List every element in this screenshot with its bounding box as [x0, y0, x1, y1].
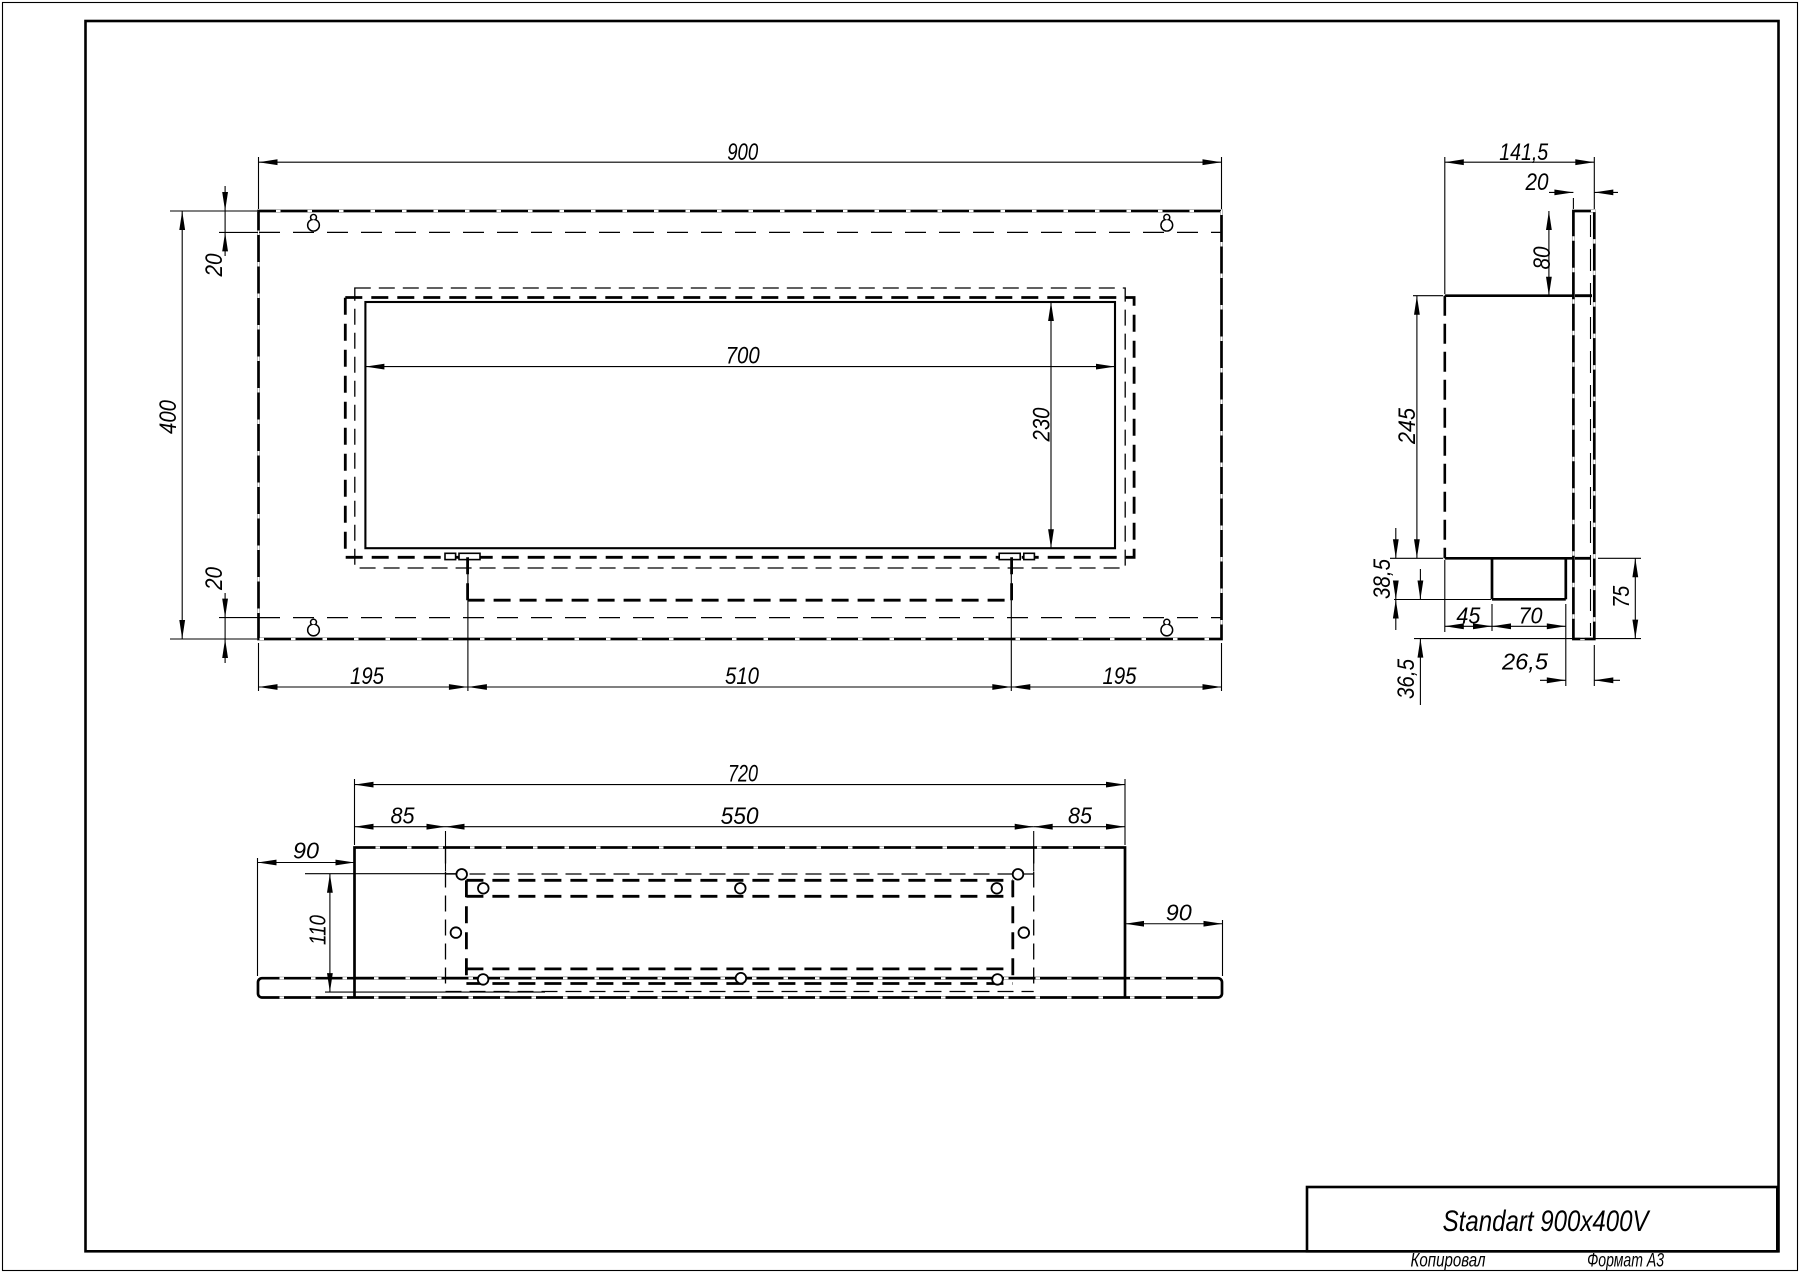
svg-text:700: 700	[726, 343, 761, 370]
svg-text:90: 90	[293, 838, 319, 864]
svg-text:70: 70	[1519, 602, 1543, 628]
svg-text:900: 900	[727, 139, 759, 166]
svg-text:Формат А3: Формат А3	[1587, 1251, 1664, 1272]
svg-text:195: 195	[350, 663, 385, 690]
svg-text:20: 20	[201, 566, 228, 590]
svg-text:75: 75	[1608, 586, 1634, 608]
svg-text:230: 230	[1029, 407, 1056, 442]
svg-text:141,5: 141,5	[1499, 139, 1549, 166]
svg-text:195: 195	[1103, 663, 1138, 690]
svg-text:110: 110	[305, 915, 331, 945]
svg-text:720: 720	[728, 760, 758, 787]
svg-text:400: 400	[155, 399, 182, 434]
svg-text:90: 90	[1166, 900, 1192, 926]
svg-text:85: 85	[391, 803, 415, 829]
svg-text:20: 20	[201, 253, 228, 277]
svg-text:510: 510	[725, 663, 760, 690]
svg-text:45: 45	[1456, 602, 1480, 628]
svg-text:550: 550	[721, 803, 760, 830]
svg-text:26,5: 26,5	[1501, 649, 1548, 675]
svg-text:38,5: 38,5	[1369, 558, 1396, 599]
svg-text:80: 80	[1529, 246, 1556, 270]
svg-text:85: 85	[1068, 803, 1092, 829]
svg-text:245: 245	[1394, 407, 1421, 444]
svg-text:36,5: 36,5	[1393, 658, 1420, 699]
svg-text:Копировал: Копировал	[1411, 1251, 1486, 1272]
svg-text:20: 20	[1525, 169, 1549, 196]
svg-text:Standart 900x400V: Standart 900x400V	[1443, 1205, 1651, 1238]
